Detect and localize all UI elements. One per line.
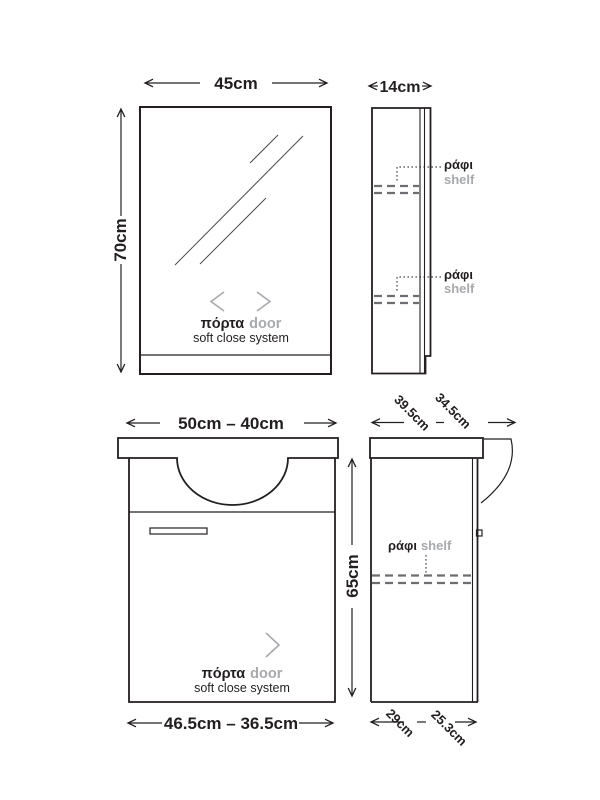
shelf-label-greek: ράφι bbox=[388, 538, 417, 553]
door-handle bbox=[150, 528, 207, 534]
door-open-chevron-left-icon bbox=[211, 292, 224, 311]
mirror-front-view: πόρταdoor soft close system bbox=[140, 107, 331, 374]
vanity-shelf-label: ράφιshelf bbox=[388, 538, 452, 553]
vanity-side-view: ράφιshelf bbox=[370, 438, 512, 702]
mirror-door-label: πόρταdoor bbox=[201, 316, 282, 332]
mirror-glare-line bbox=[175, 136, 303, 265]
vanity-bottom-depth-total-value: 29cm bbox=[383, 706, 417, 740]
mirror-depth-dimension: 14cm bbox=[369, 79, 431, 96]
vanity-depth-total-value: 39.5cm bbox=[391, 392, 433, 434]
vanity-height-dimension: 65cm bbox=[343, 459, 362, 696]
vanity-door-label-english: door bbox=[250, 666, 283, 682]
vanity-side-bottom-depth-dimension: 29cm 25.3cm bbox=[371, 706, 476, 749]
mirror-glare-line bbox=[250, 135, 278, 163]
vanity-top-width-value: 50cm – 40cm bbox=[178, 414, 284, 433]
shelf-label-greek: ράφι bbox=[444, 157, 473, 172]
mirror-side-outline bbox=[372, 108, 431, 374]
mirror-door-label-english: door bbox=[249, 316, 282, 332]
vanity-door-label-greek: πόρτα bbox=[202, 666, 246, 682]
vanity-depth-body-value: 34.5cm bbox=[432, 390, 474, 432]
furniture-dimension-diagram: πόρταdoor soft close system 45cm 70cm ρά… bbox=[0, 0, 600, 800]
vanity-door-label: πόρταdoor bbox=[202, 666, 283, 682]
vanity-bottom-depth-body-value: 25.3cm bbox=[428, 707, 470, 749]
vanity-bottom-width-value: 46.5cm – 36.5cm bbox=[164, 714, 298, 733]
shelf-leader-line bbox=[397, 167, 441, 183]
basin-top-outline bbox=[118, 438, 338, 505]
vanity-soft-close-label: soft close system bbox=[194, 681, 290, 695]
vanity-front-view: πόρταdoor soft close system bbox=[118, 438, 338, 702]
door-open-chevron-icon bbox=[266, 633, 279, 657]
mirror-side-view: ράφι shelf ράφι shelf bbox=[372, 108, 475, 374]
mirror-height-value: 70cm bbox=[111, 218, 130, 261]
shelf-label-english: shelf bbox=[421, 538, 452, 553]
mirror-width-value: 45cm bbox=[214, 74, 257, 93]
shelf-label-greek: ράφι bbox=[444, 267, 473, 282]
door-open-chevron-right-icon bbox=[257, 292, 270, 311]
basin-top-side-outline bbox=[370, 438, 483, 458]
vanity-top-width-dimension: 50cm – 40cm bbox=[127, 414, 336, 433]
vanity-side-top-depth-dimension: 39.5cm 34.5cm bbox=[372, 390, 515, 434]
basin-lip-curve bbox=[481, 439, 512, 503]
mirror-height-dimension: 70cm bbox=[111, 109, 130, 372]
vanity-height-value: 65cm bbox=[343, 554, 362, 597]
mirror-door-label-greek: πόρτα bbox=[201, 316, 245, 332]
mirror-soft-close-label: soft close system bbox=[193, 331, 289, 345]
shelf-label-english: shelf bbox=[444, 281, 475, 296]
shelf-label-english: shelf bbox=[444, 172, 475, 187]
mirror-glare-line bbox=[200, 198, 266, 264]
mirror-depth-value: 14cm bbox=[380, 79, 421, 96]
mirror-width-dimension: 45cm bbox=[145, 74, 327, 93]
vanity-bottom-width-dimension: 46.5cm – 36.5cm bbox=[128, 714, 333, 733]
shelf-leader-line bbox=[397, 277, 441, 292]
